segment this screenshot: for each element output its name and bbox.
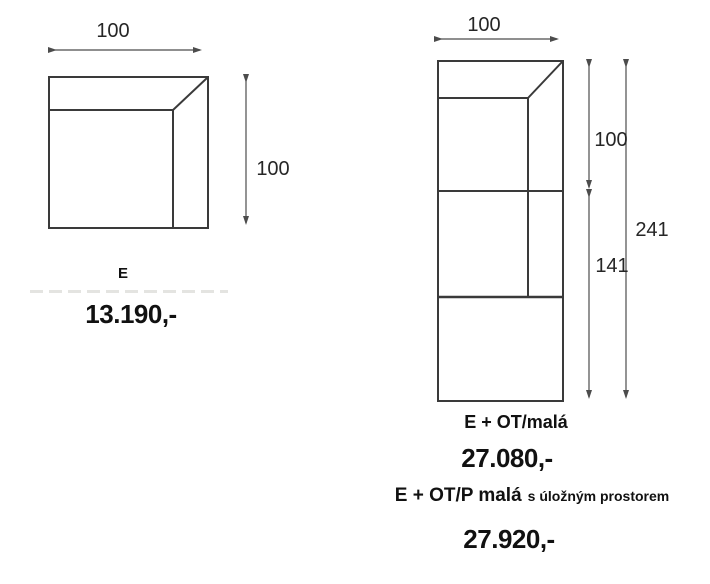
eotp-product-label: E + OT/P malás úložným prostorem (395, 486, 670, 505)
eot-price: 27.080,- (461, 445, 552, 471)
eotp-product-label-main: E + OT/P malá (395, 485, 522, 506)
figure-module-e (49, 50, 246, 228)
eot-outline (438, 61, 563, 401)
e-price: 13.190,- (85, 301, 176, 327)
diagram-canvas: 100 100 E 13.190,- 100 100 141 241 E + O… (0, 0, 710, 584)
eot-seam-diagonal (528, 62, 562, 98)
e-height-dimension-value: 100 (256, 159, 289, 179)
eot-total-dimension-value: 241 (635, 220, 668, 240)
eot-upper-dimension-value: 100 (594, 130, 627, 150)
eot-lower-dimension-value: 141 (595, 256, 628, 276)
e-product-label: E (118, 266, 128, 281)
watermark-remnant (30, 290, 228, 293)
e-seam-diagonal (173, 78, 207, 110)
figure-module-e-ot (438, 39, 626, 401)
eot-product-label: E + OT/malá (464, 413, 568, 431)
eotp-price: 27.920,- (463, 526, 554, 552)
eot-width-dimension-value: 100 (467, 15, 500, 35)
e-width-dimension-value: 100 (96, 21, 129, 41)
eotp-product-label-suffix: s úložným prostorem (528, 488, 670, 504)
